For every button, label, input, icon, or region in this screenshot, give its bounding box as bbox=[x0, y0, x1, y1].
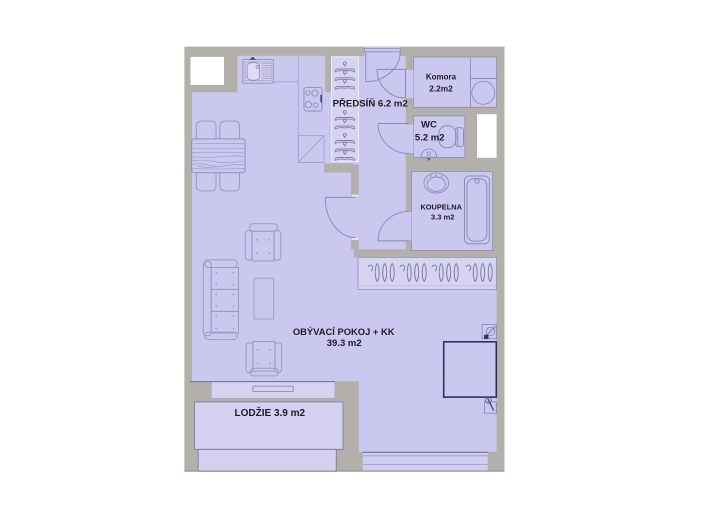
svg-text:3.3 m2: 3.3 m2 bbox=[431, 213, 455, 222]
svg-text:WC: WC bbox=[421, 120, 437, 131]
svg-text:OBÝVACÍ POKOJ + KK: OBÝVACÍ POKOJ + KK bbox=[293, 326, 395, 337]
svg-text:Komora: Komora bbox=[426, 73, 457, 82]
svg-text:2.2m2: 2.2m2 bbox=[429, 84, 453, 94]
svg-text:39.3 m2: 39.3 m2 bbox=[327, 338, 362, 349]
svg-text:PŘEDSÍŇ 6.2 m2: PŘEDSÍŇ 6.2 m2 bbox=[333, 97, 408, 109]
svg-text:LODŽIE 3.9 m2: LODŽIE 3.9 m2 bbox=[235, 406, 306, 419]
svg-text:KOUPELNA: KOUPELNA bbox=[420, 202, 462, 211]
svg-text:5.2 m2: 5.2 m2 bbox=[415, 132, 445, 143]
